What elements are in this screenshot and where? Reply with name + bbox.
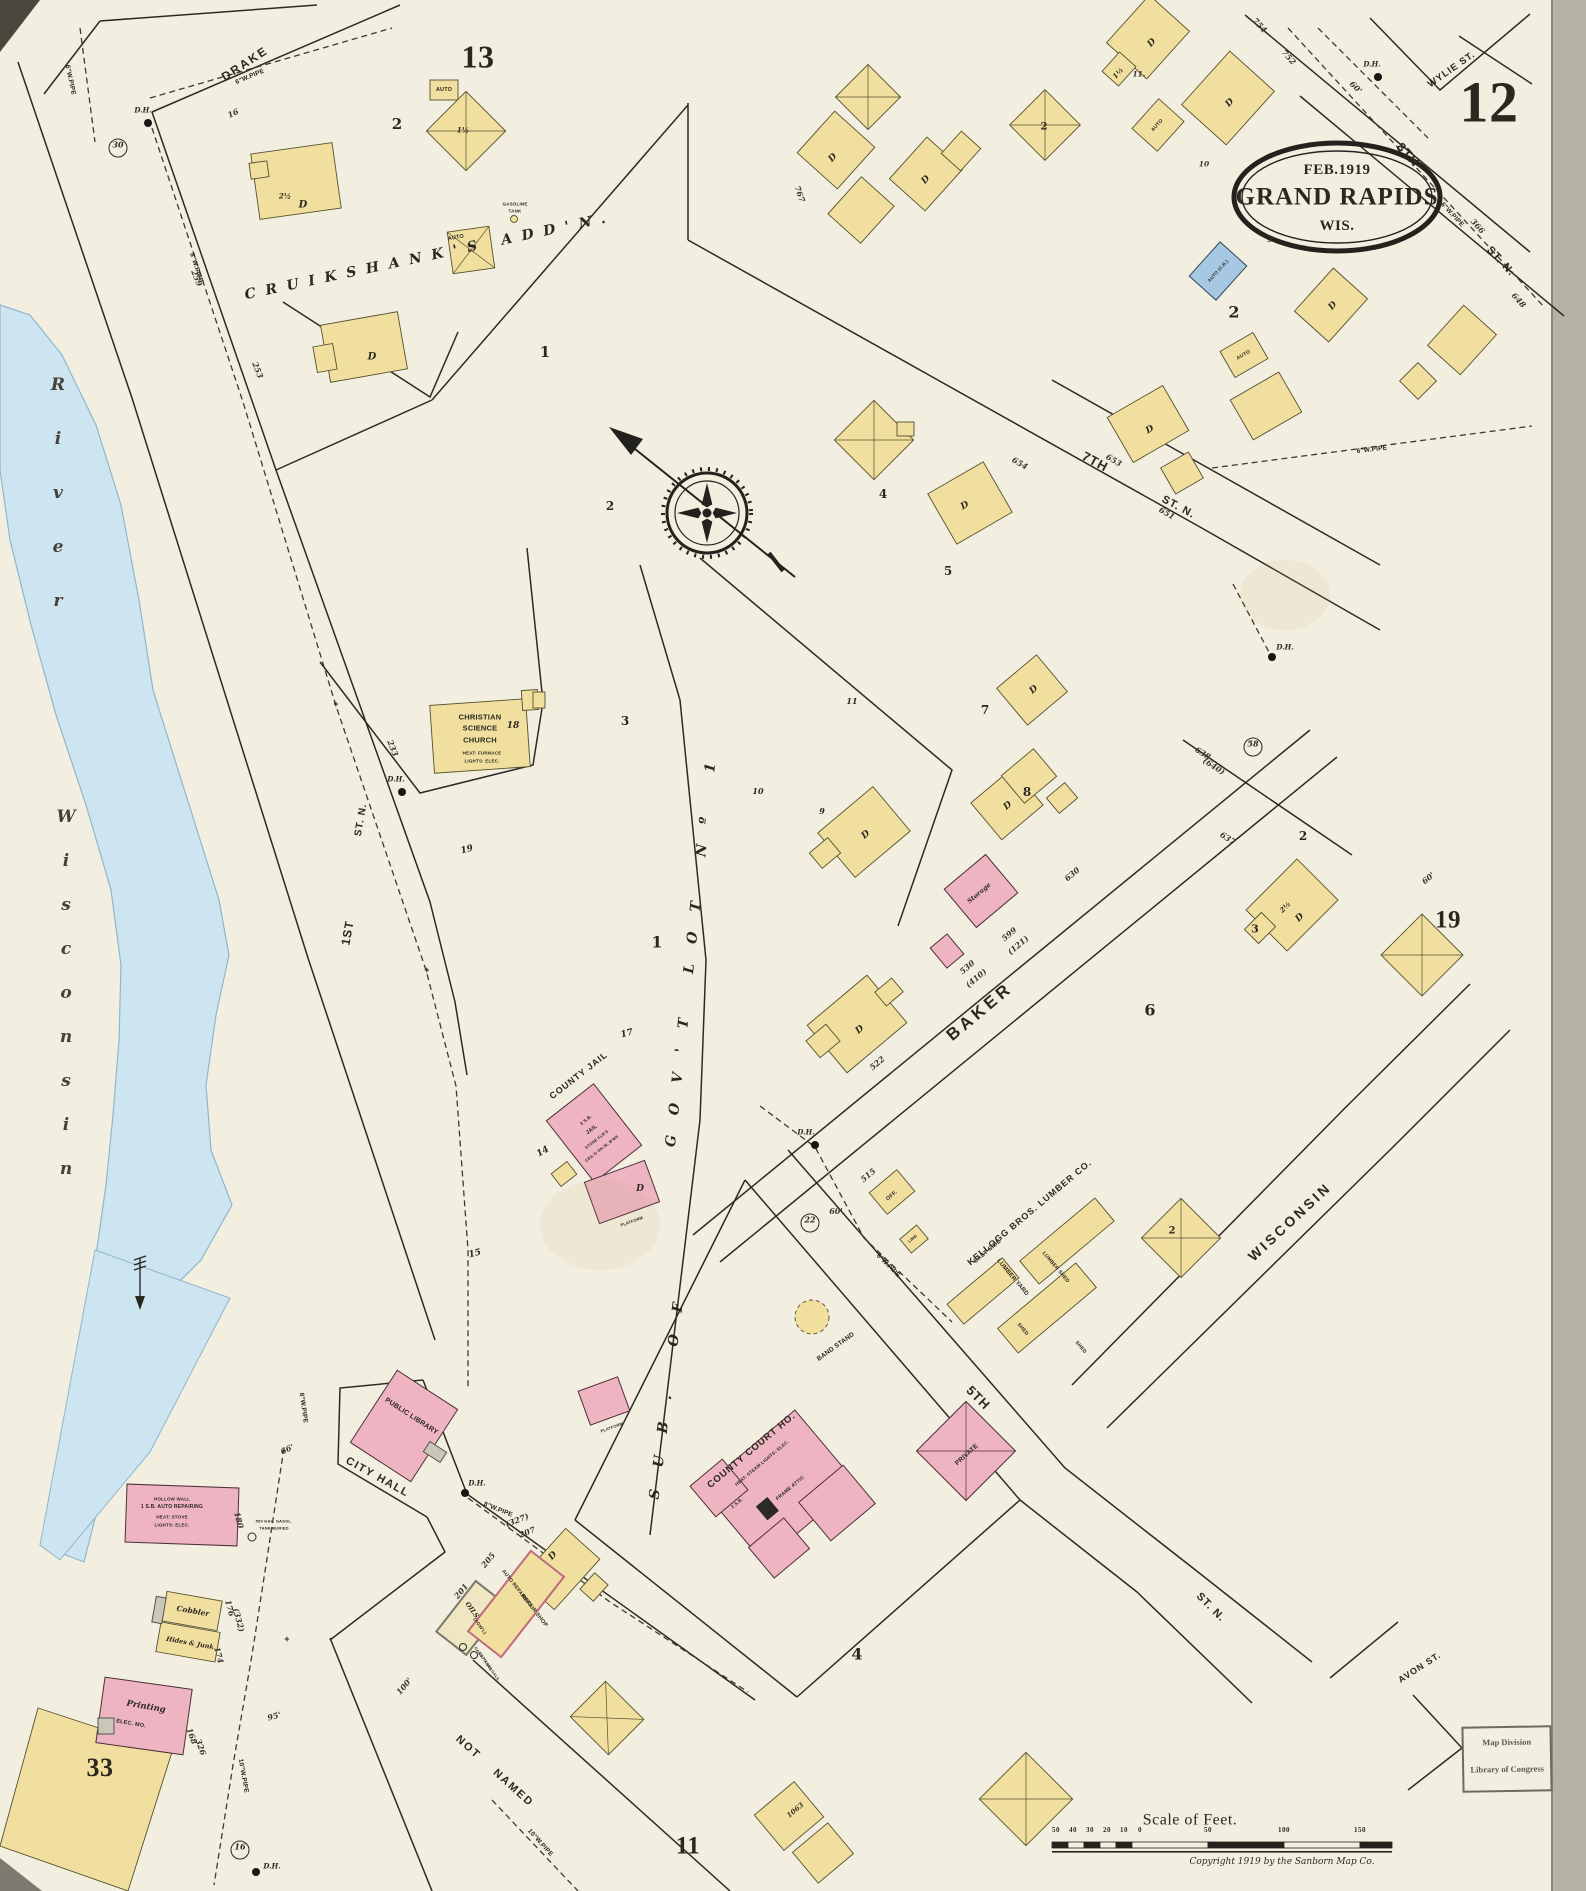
block-number: 2 (1041, 122, 1048, 133)
valve-circle-22: 22 (801, 1214, 820, 1233)
scan-corner-bottom-left (0, 1858, 42, 1891)
scan-right-strip (1552, 0, 1586, 1891)
block-number: 2 (1299, 829, 1307, 843)
gasoline-tank-label-2: TANK (509, 208, 522, 213)
church-name-1: CHRISTIAN (459, 714, 502, 723)
block-number: 7 (981, 703, 989, 717)
church-name-2: SCIENCE (463, 725, 498, 734)
hydrant-label: D.H. (1363, 60, 1380, 69)
gasoline-tank-circle (511, 216, 518, 223)
auto-label-1: AUTO (436, 87, 452, 93)
block-number: 1 (651, 933, 662, 952)
block-number: 2 (606, 499, 614, 513)
river-garage-1: HOLLOW WALL (154, 1496, 190, 1501)
block-number: 4 (851, 1645, 862, 1664)
block-number: 8 (1023, 785, 1031, 799)
lot-number: 9 (819, 806, 825, 816)
scale-title: Scale of Feet. (1143, 1811, 1238, 1828)
valve-circle-16: 16 (231, 1841, 250, 1860)
hydrant-label: D.H. (468, 1479, 485, 1488)
scale-tick: 100 (1278, 1827, 1290, 1835)
lot-number: 18 (507, 721, 520, 731)
pipe-junction-mark: + (333, 699, 338, 709)
scale-tick: 150 (1354, 1827, 1366, 1835)
dwelling-label: D (636, 1184, 644, 1194)
lot-33-label: 33 (87, 1754, 114, 1782)
lot-number: 2½ (279, 192, 291, 201)
scale-tick: 0 (1138, 1827, 1142, 1835)
stamp-line-1: Map Division (1464, 1737, 1550, 1747)
paper-stain (1240, 560, 1330, 630)
block-number: 2 (1228, 303, 1239, 322)
block-number: 5 (944, 564, 952, 578)
valve-circle-30: 30 (109, 139, 128, 158)
gasoline-tank-label-1: GASOLINE (502, 201, 527, 206)
scale-tick: 30 (1086, 1827, 1094, 1835)
dim-label: 10 (1199, 160, 1209, 169)
church-name-3: CHURCH (463, 737, 497, 746)
river-garage-4: LIGHTS: ELEC. (154, 1522, 189, 1527)
compass-rose-icon (609, 427, 795, 577)
dim-label: 11. (1132, 70, 1145, 79)
scale-bar (1052, 1842, 1392, 1853)
wisconsin-river (0, 305, 232, 1562)
dim-label: 60' (829, 1206, 843, 1216)
river-label-word-wisconsin: Wisconsin (56, 807, 76, 1203)
title-date: FEB.1919 (1304, 162, 1371, 178)
valve-circle-58: 58 (1244, 738, 1263, 757)
block-number: 2 (1169, 1226, 1176, 1237)
sheet-number: 12 (1460, 72, 1519, 135)
title-state: WIS. (1320, 218, 1355, 234)
block-number: 3 (1251, 923, 1259, 936)
buried-tank-note-1: 500 GAL. GASOL. (256, 1520, 293, 1525)
block-number: 1 (540, 343, 550, 361)
hydrant-label: D.H. (134, 106, 151, 115)
river-label-word-river: River (48, 375, 68, 645)
library-of-congress-stamp: Map Division Library of Congress (1461, 1725, 1552, 1793)
sheet-neighbor-bottom: 11 (676, 1833, 701, 1860)
scale-tick: 50 (1052, 1827, 1060, 1835)
buried-tank-note-2: TANK BURIED (259, 1527, 288, 1532)
block-number: 2 (392, 115, 402, 133)
river-garage-3: HEAT: STOVE (156, 1514, 188, 1519)
scale-tick: 10 (1120, 1827, 1128, 1835)
scale-tick: 40 (1069, 1827, 1077, 1835)
church-note-1: HEAT: FURNACE (463, 750, 502, 755)
hydrant-label: D.H. (1276, 643, 1293, 652)
dwelling-label: D (368, 352, 377, 363)
hydrant-label: D.H. (263, 1862, 280, 1871)
block-number: 3 (621, 714, 629, 728)
pipe-junction-mark: + (284, 1634, 289, 1644)
church-note-2: LIGHTS: ELEC. (464, 758, 499, 763)
dwelling-label: D (299, 200, 308, 211)
hydrant-label: D.H. (387, 775, 404, 784)
block-number: 6 (1144, 1001, 1155, 1020)
block-number: 4 (879, 487, 887, 501)
scale-tick: 50 (1204, 1827, 1212, 1835)
scale-tick: 20 (1103, 1827, 1111, 1835)
sanborn-map-sheet: 12 13 19 11 FEB.1919 GRAND RAPIDS WIS. D… (0, 0, 1586, 1891)
buildings-special (98, 242, 1247, 1734)
stamp-line-2: Library of Congress (1464, 1764, 1550, 1774)
hydrant-label: D.H. (797, 1128, 814, 1137)
title-city: GRAND RAPIDS (1236, 184, 1439, 211)
pipe-junction-mark: + (424, 965, 429, 975)
lot-number: 10 (752, 786, 763, 796)
scan-corner-top-left (0, 0, 40, 52)
river-garage-2: 1 S.B. AUTO REPAIRING (141, 1505, 203, 1511)
sheet-neighbor-right: 19 (1435, 907, 1461, 934)
buried-gas-tank-circle (248, 1533, 256, 1541)
copyright-line: Copyright 1919 by the Sanborn Map Co. (1189, 1857, 1374, 1867)
lot-number: 9 (1267, 234, 1273, 244)
lot-number: 11 (846, 696, 857, 706)
sheet-neighbor-top-left: 13 (462, 40, 495, 75)
band-stand-circle (795, 1300, 829, 1334)
lot-number: 1½ (457, 126, 469, 135)
